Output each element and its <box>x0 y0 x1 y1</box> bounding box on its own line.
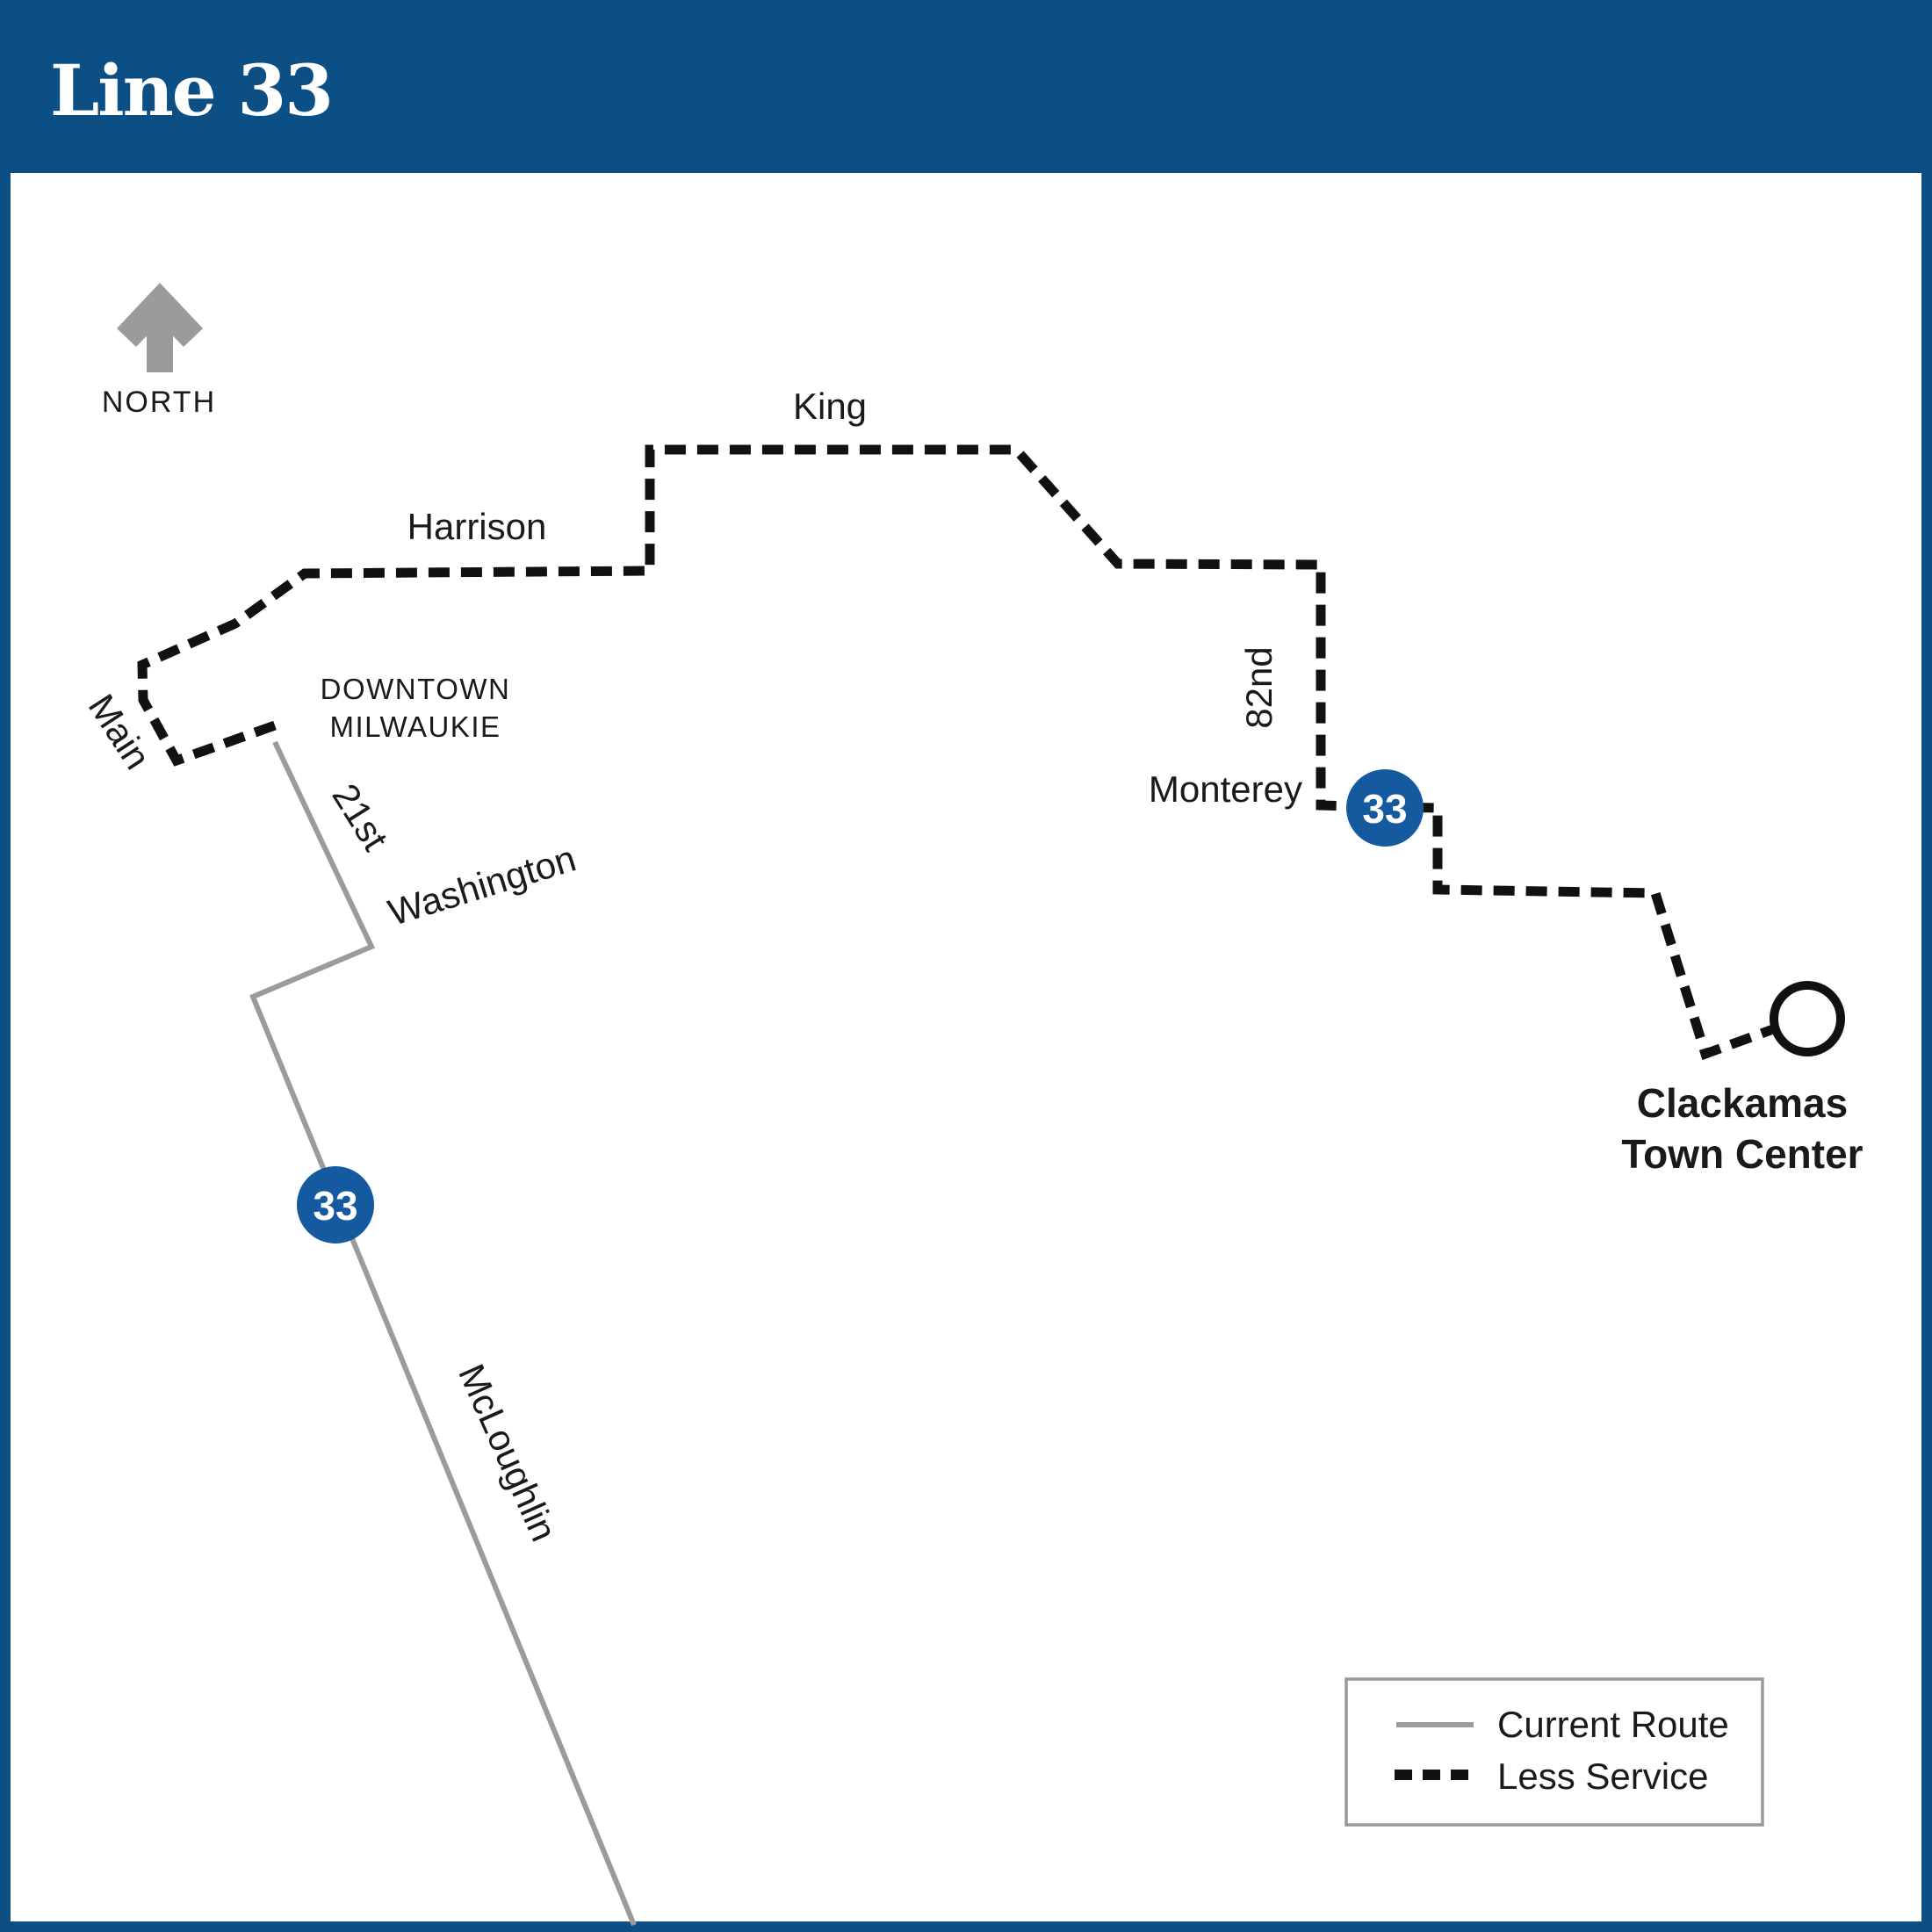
street-label-harrison: Harrison <box>407 506 547 547</box>
north-label: NORTH <box>102 386 216 419</box>
terminus-label-line2: Town Center <box>1621 1131 1863 1177</box>
route-map-canvas: Line 33 NORTH Harrison King Main 21st Wa… <box>0 0 1932 1932</box>
page-title: Line 33 <box>50 49 332 132</box>
map-panel <box>11 173 1921 1921</box>
street-label-monterey: Monterey <box>1149 768 1302 810</box>
legend-current-route-label: Current Route <box>1497 1704 1729 1745</box>
north-arrow-shaft <box>147 318 173 372</box>
legend-box <box>1346 1679 1763 1825</box>
legend: Current Route Less Service <box>1346 1679 1763 1825</box>
terminus-label-line1: Clackamas <box>1637 1080 1848 1126</box>
terminus-circle <box>1774 985 1841 1052</box>
route-badge-number: 33 <box>1362 786 1407 832</box>
area-label-line2: MILWAUKIE <box>329 710 501 743</box>
route-badge-number: 33 <box>313 1183 357 1229</box>
route-badge-mcloughlin: 33 <box>297 1166 374 1244</box>
area-label-line1: DOWNTOWN <box>321 673 511 705</box>
street-label-82nd: 82nd <box>1238 646 1280 728</box>
map-svg: Line 33 NORTH Harrison King Main 21st Wa… <box>0 0 1932 1932</box>
route-badge-monterey: 33 <box>1346 769 1424 847</box>
legend-less-service-label: Less Service <box>1497 1755 1708 1797</box>
street-label-king: King <box>793 386 867 427</box>
